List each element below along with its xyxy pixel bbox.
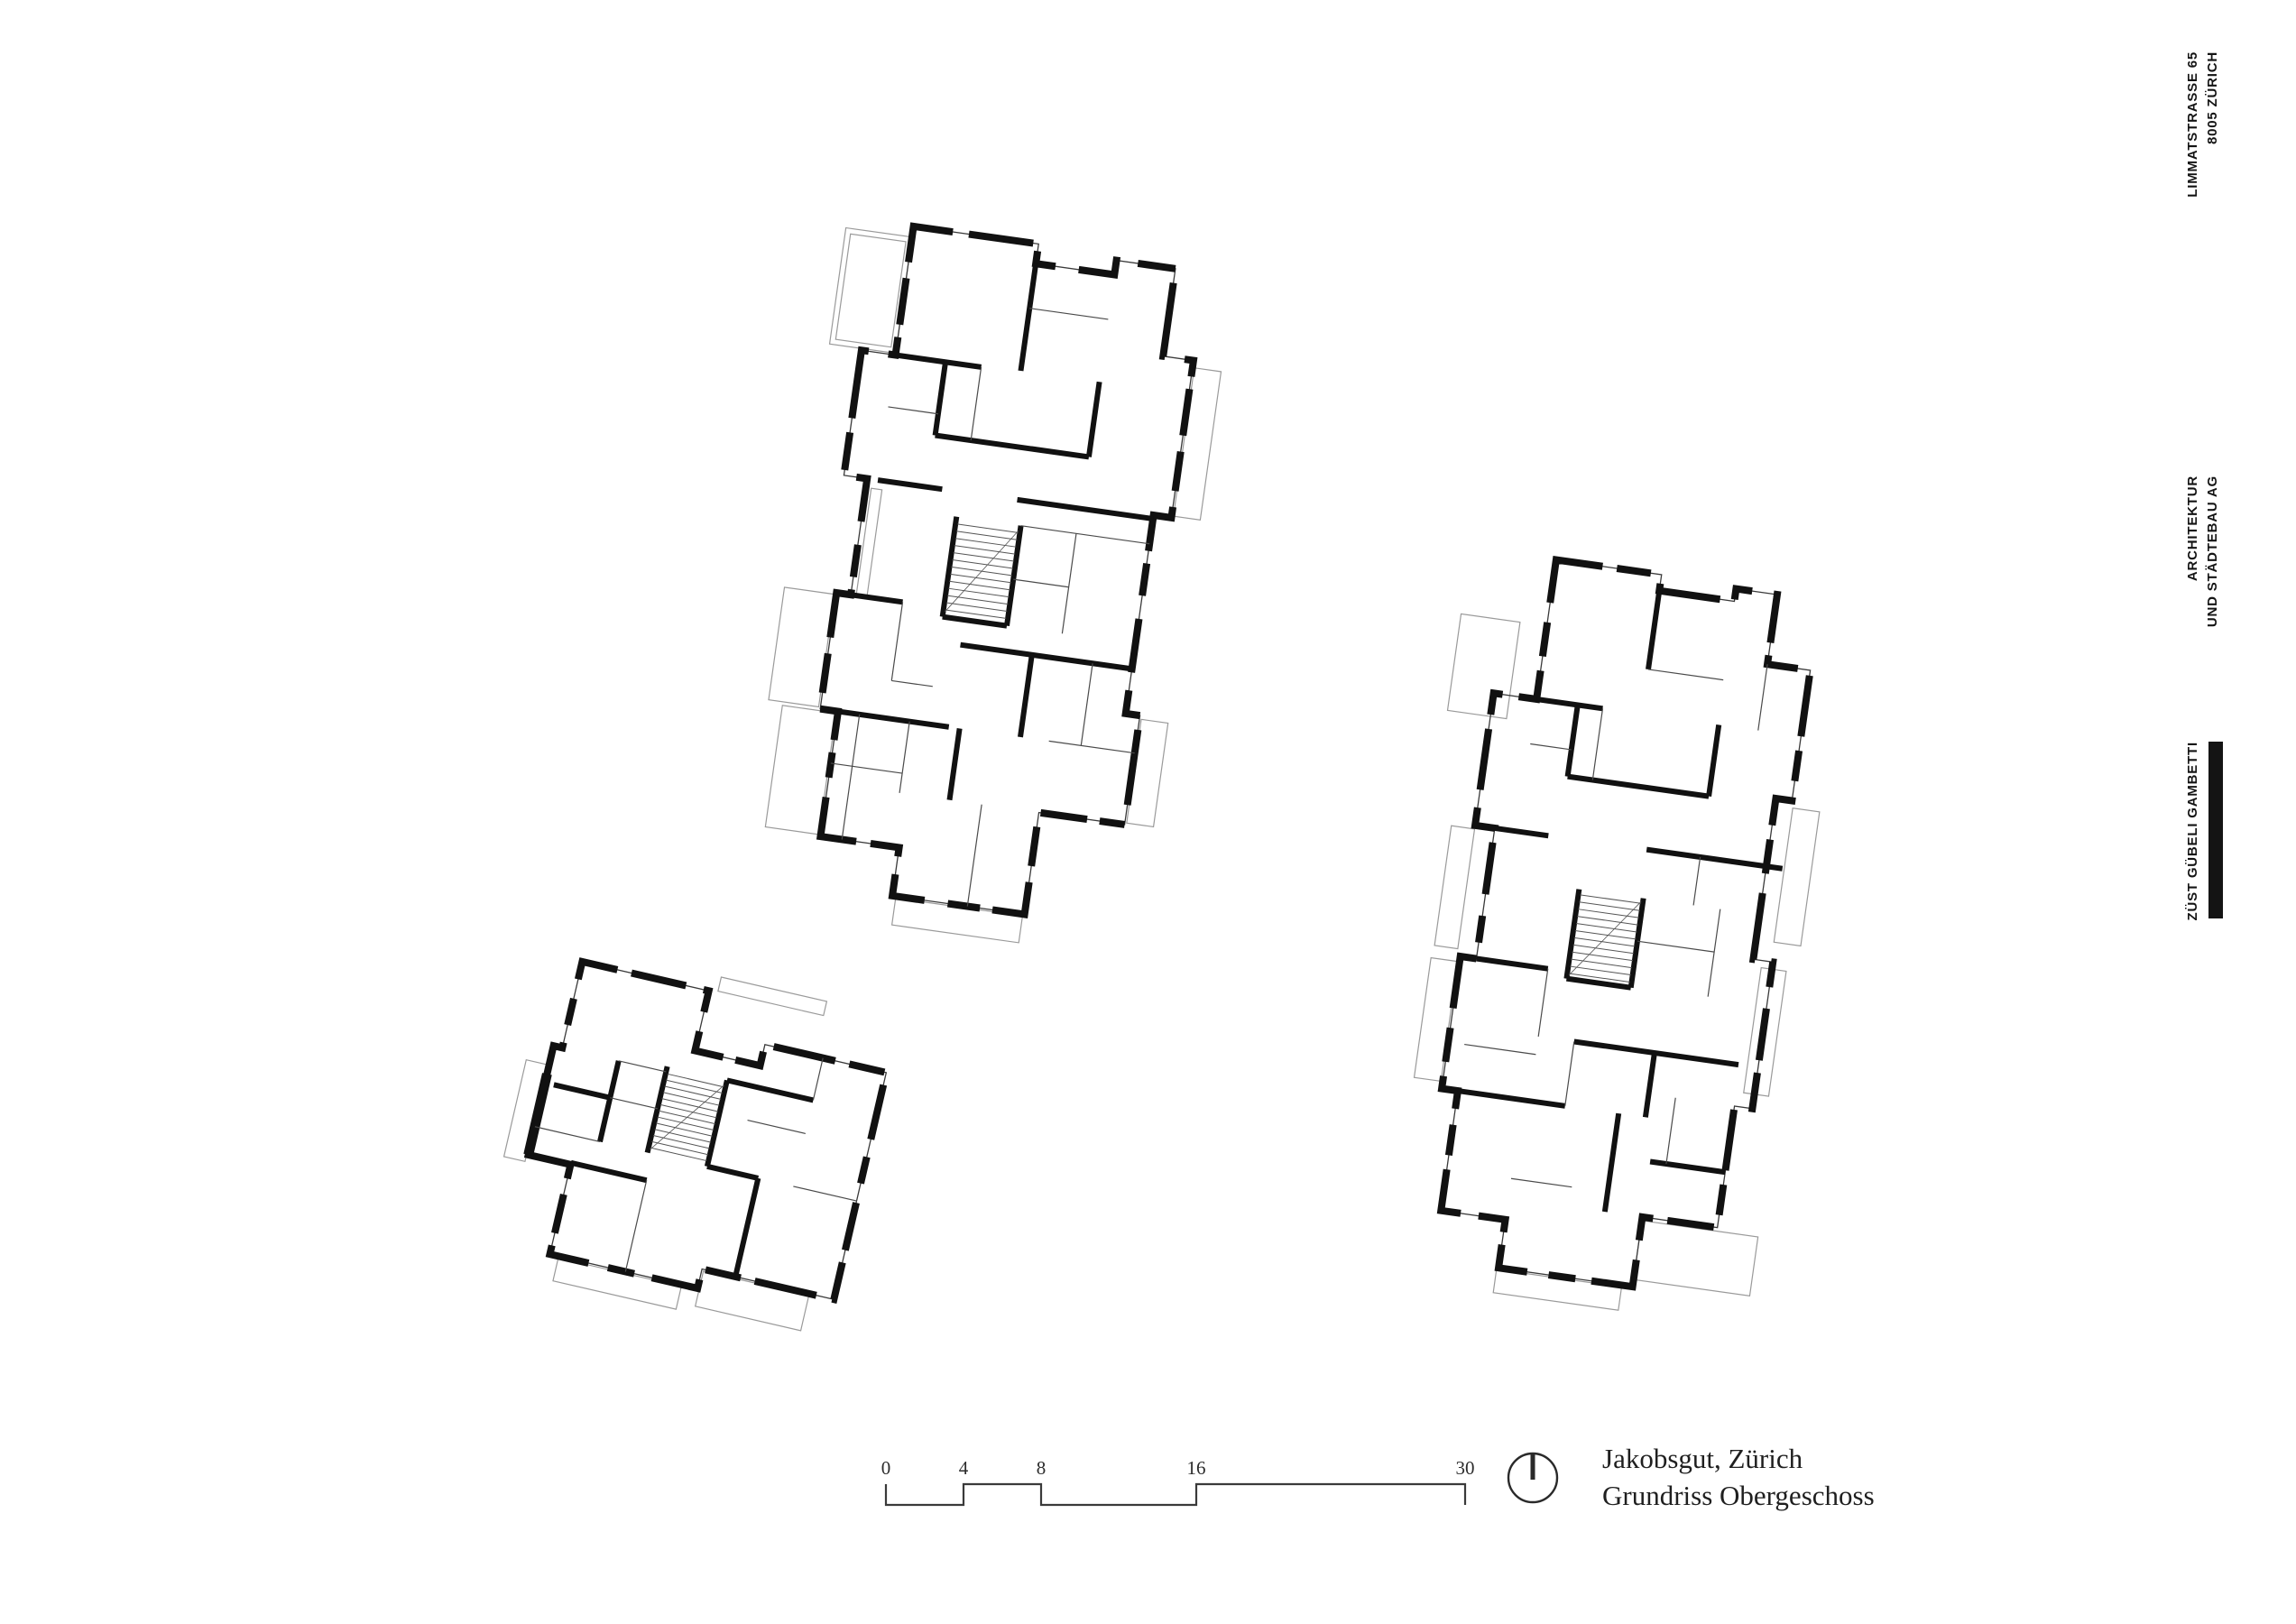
north-arrow-icon	[1508, 1453, 1557, 1502]
letterhead-firm-name: ZÜST GÜBELI GAMBETTI	[2183, 742, 2203, 1030]
letterhead-descriptor: ARCHITEKTUR UND STÄDTEBAU AG	[2183, 475, 2223, 764]
letterhead-street: LIMMATSTRASSE 65	[2183, 51, 2203, 340]
building-a-exterior-walls	[787, 222, 1206, 927]
drawing-sheet: 0 4 8 16 30 Jakobsgut, Zürich Grundriss …	[0, 0, 2296, 1624]
building-c-stair	[1569, 893, 1641, 984]
scale-label-0: 0	[866, 1457, 906, 1480]
letterhead-descriptor-line2: UND STÄDTEBAU AG	[2203, 475, 2223, 764]
letterhead-firm: ZÜST GÜBELI GAMBETTI	[2183, 742, 2223, 1030]
floorplan-building-b	[479, 938, 899, 1343]
letterhead-city: 8005 ZÜRICH	[2203, 51, 2223, 340]
drawing-title: Grundriss Obergeschoss	[1602, 1477, 1875, 1514]
building-b-outline	[508, 960, 896, 1319]
letterhead-address: LIMMATSTRASSE 65 8005 ZÜRICH	[2183, 51, 2223, 340]
scale-bar-graphic	[886, 1484, 1465, 1505]
scale-label-16: 16	[1176, 1457, 1216, 1480]
letterhead-descriptor-line1: ARCHITEKTUR	[2183, 475, 2203, 764]
title-block: Jakobsgut, Zürich Grundriss Obergeschoss	[1602, 1440, 1875, 1514]
building-b-exterior-walls	[508, 960, 896, 1319]
building-c-exterior-walls	[1415, 554, 1824, 1300]
building-b-left-wall	[529, 1074, 548, 1155]
scale-label-8: 8	[1021, 1457, 1061, 1480]
building-a-partitions	[814, 290, 1194, 927]
floorplan-canvas	[0, 0, 2296, 1624]
project-title: Jakobsgut, Zürich	[1602, 1440, 1875, 1477]
building-b-balconies	[479, 938, 874, 1337]
scale-label-30: 30	[1445, 1457, 1485, 1480]
building-c-partitions	[1447, 630, 1767, 1204]
floorplan-building-c	[1369, 548, 1849, 1328]
building-c-outline	[1415, 554, 1824, 1300]
floorplan-building-a	[740, 216, 1235, 960]
scale-label-4: 4	[944, 1457, 983, 1480]
building-a-balconies	[740, 226, 1233, 960]
letterhead-accent-bar	[2208, 742, 2223, 918]
building-a-interior-walls	[825, 245, 1186, 823]
